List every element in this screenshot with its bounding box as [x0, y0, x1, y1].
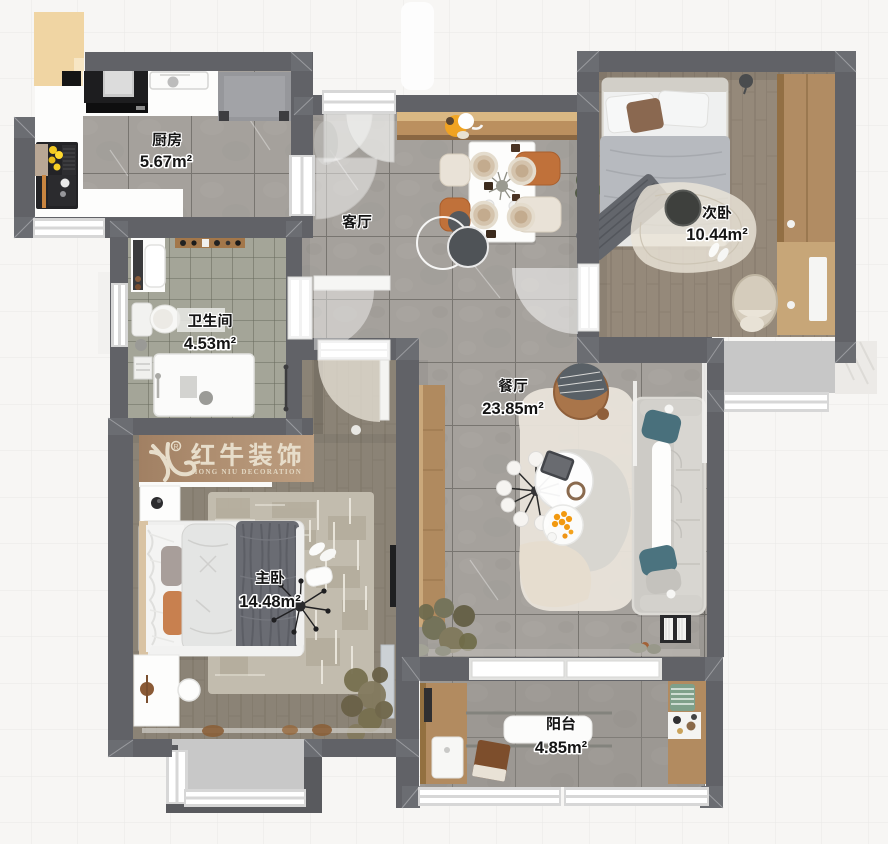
svg-text:4.85m²: 4.85m² [535, 739, 588, 757]
svg-text:R: R [173, 444, 178, 451]
svg-text:23.85m²: 23.85m² [482, 400, 544, 418]
svg-text:HONG NIU DECORATION: HONG NIU DECORATION [192, 468, 302, 476]
svg-text:5.67m²: 5.67m² [140, 153, 193, 171]
svg-text:4.53m²: 4.53m² [184, 335, 237, 353]
svg-text:14.48m²: 14.48m² [239, 593, 301, 611]
svg-text:10.44m²: 10.44m² [686, 226, 748, 244]
